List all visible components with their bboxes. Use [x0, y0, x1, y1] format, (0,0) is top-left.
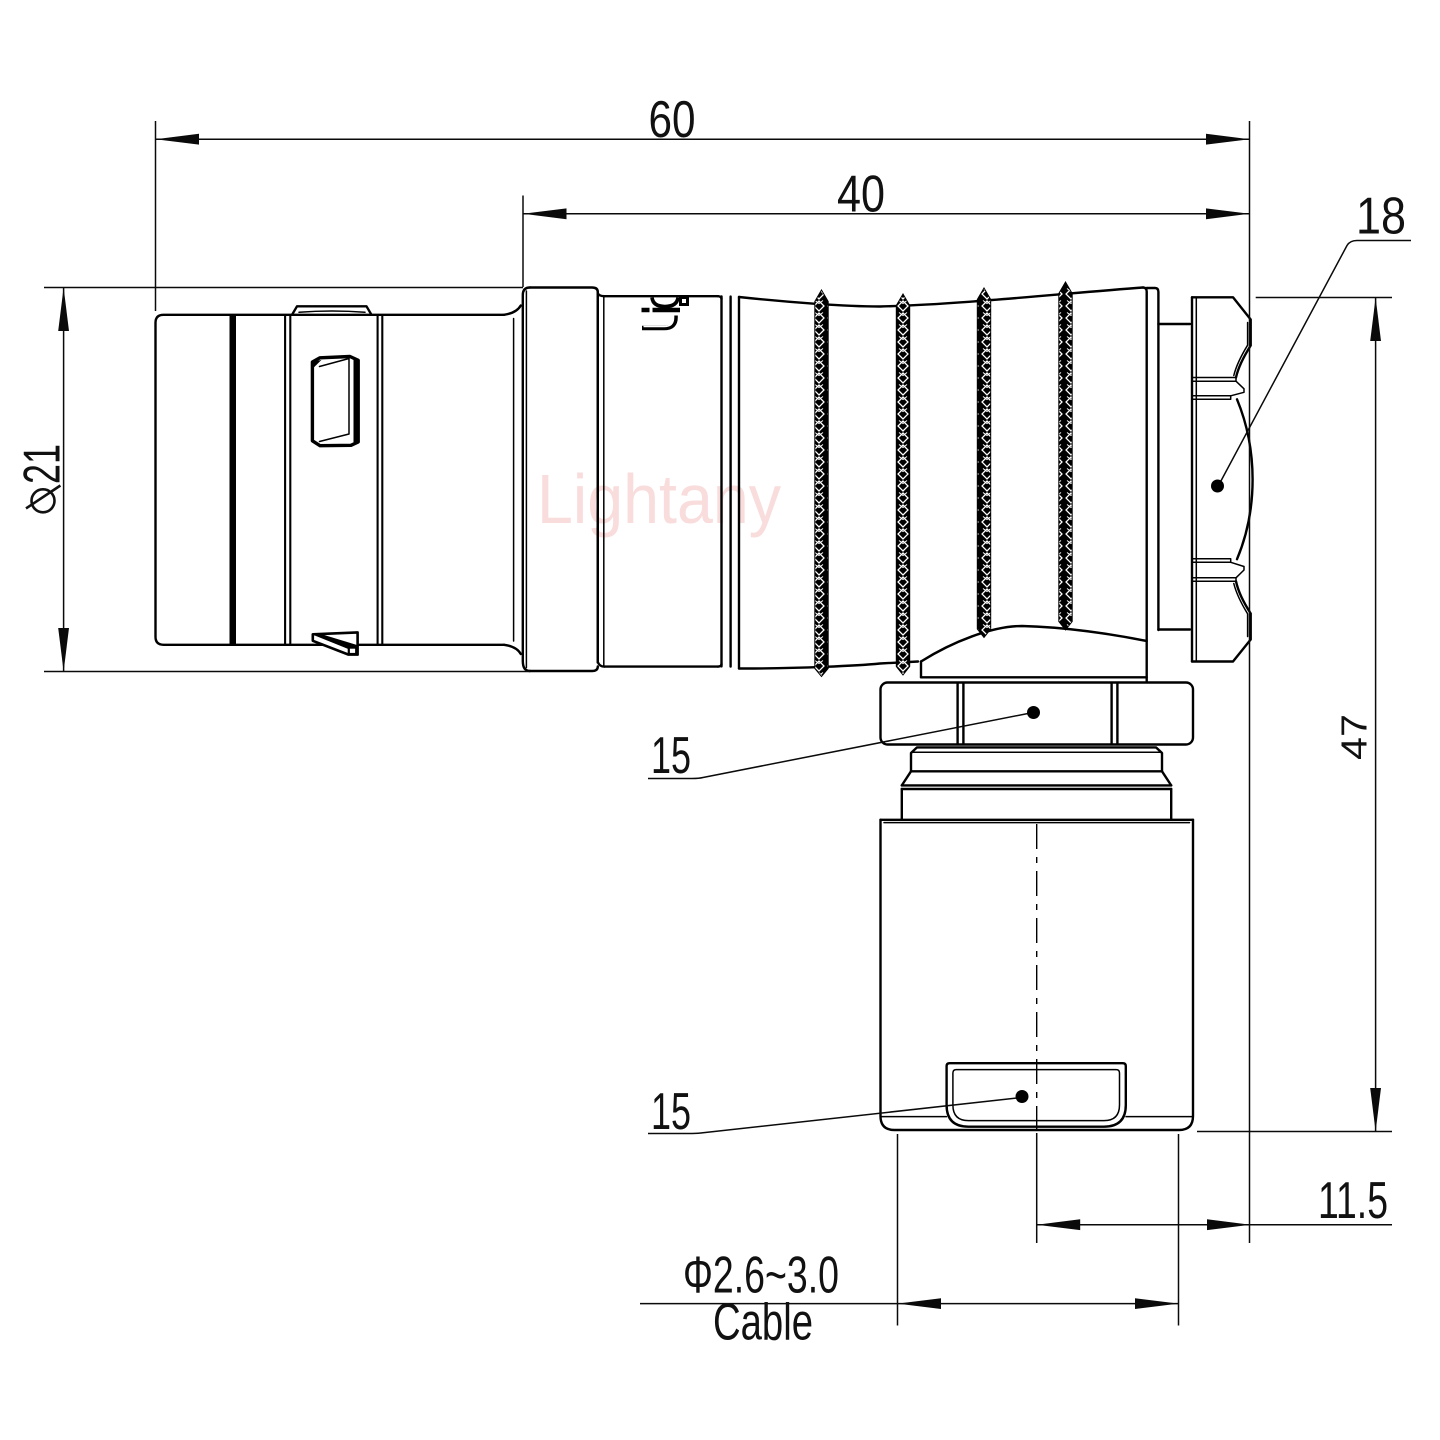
- svg-text:11.5: 11.5: [1318, 1172, 1388, 1230]
- svg-text:18: 18: [1356, 188, 1406, 246]
- svg-text:15: 15: [651, 727, 691, 785]
- svg-text:47: 47: [1334, 714, 1375, 760]
- svg-text:Cable: Cable: [713, 1294, 813, 1352]
- svg-text:21: 21: [14, 444, 72, 484]
- svg-text:Lightany: Lightany: [537, 460, 781, 538]
- svg-text:15: 15: [651, 1083, 691, 1141]
- svg-text:40: 40: [837, 166, 885, 224]
- svg-text:60: 60: [649, 91, 696, 149]
